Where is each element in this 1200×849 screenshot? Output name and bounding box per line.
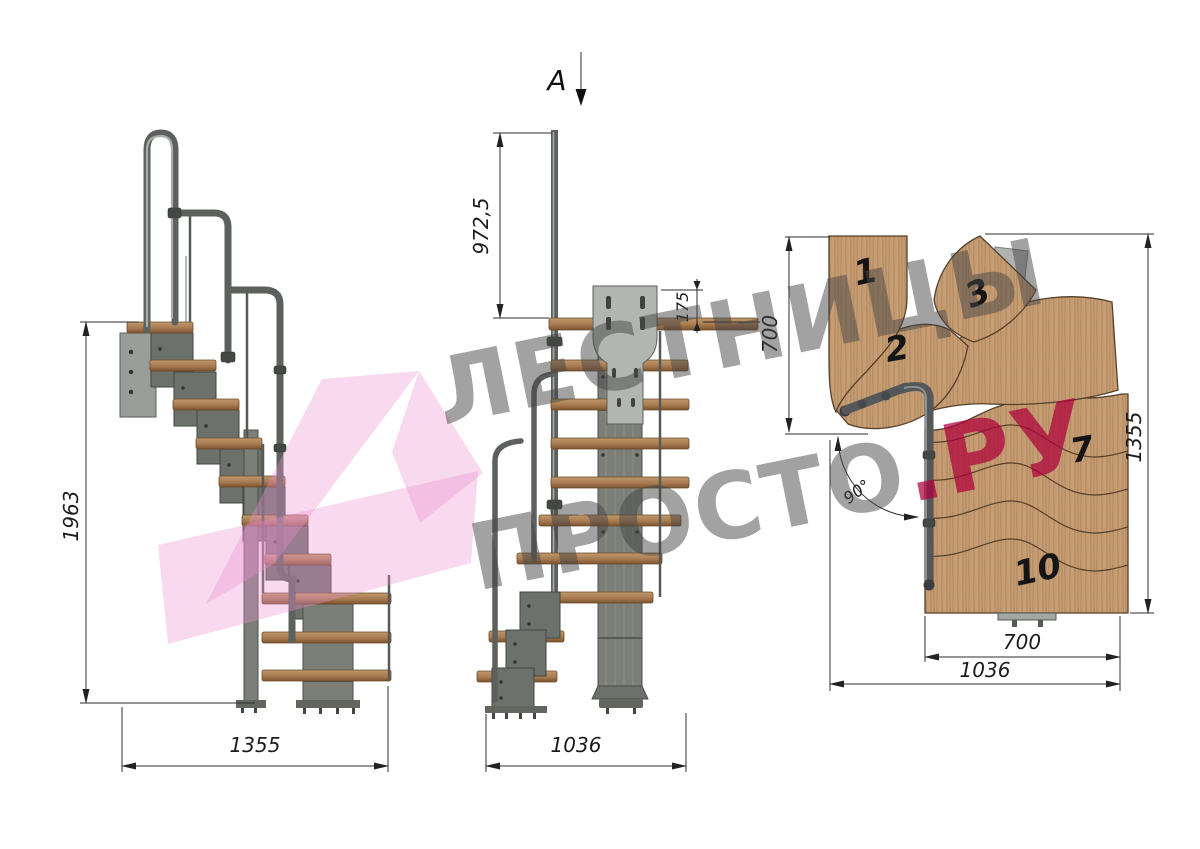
section-label: A (545, 64, 566, 97)
plate-offset-dimension: 175 (673, 292, 692, 323)
drawing-canvas: 1963 1355 A (0, 0, 1200, 849)
lower-flight-column (303, 604, 353, 702)
section-arrow-icon (576, 89, 587, 106)
plan-flight-width-dimension: 700 (1003, 630, 1041, 654)
side-width-dimension: 1355 (230, 733, 281, 757)
column-base (599, 699, 643, 708)
section-marker: A (545, 52, 586, 106)
turn-angle-dimension: 90° (840, 476, 874, 508)
plan-turn-depth-dimension: 700 (758, 315, 782, 353)
plan-view: 1 2 3 7 10 700 1355 700 1036 90° (758, 234, 1154, 691)
plan-total-length-dimension: 1355 (1122, 412, 1146, 463)
side-height-dimension: 1963 (59, 491, 83, 542)
front-elevation-view: A (469, 52, 760, 772)
column-base-flare (592, 686, 648, 699)
plan-base-foot (998, 613, 1056, 620)
post-base-plate (236, 700, 266, 708)
staircase-technical-drawing: 1963 1355 A (0, 0, 1200, 849)
plan-total-width-dimension: 1036 (960, 658, 1011, 682)
front-width-dimension: 1036 (551, 733, 602, 757)
column-base-plate (296, 700, 360, 708)
handrail-height-dimension: 972,5 (469, 197, 493, 254)
